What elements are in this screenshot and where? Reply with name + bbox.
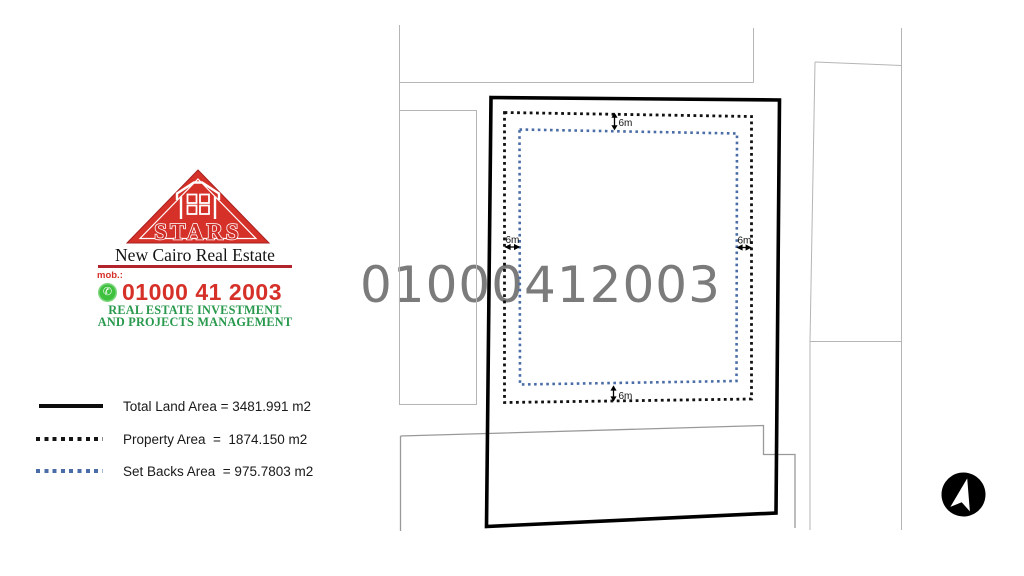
tagline-line2: AND PROJECTS MANAGEMENT	[90, 315, 300, 330]
logo-roof-graphic: STARS	[90, 166, 300, 244]
setback-label-right: 6m	[738, 236, 752, 247]
dotted-black-swatch	[36, 437, 103, 441]
logo-divider	[98, 265, 292, 268]
dimension-arrowheads	[504, 113, 751, 402]
solid-line-swatch	[39, 404, 103, 408]
setback-label-top: 6m	[619, 118, 633, 129]
dotted-blue-swatch	[36, 469, 103, 473]
legend-label-setbacks: Set Backs Area = 975.7803 m2	[123, 464, 313, 479]
legend-row-setbacks: Set Backs Area = 975.7803 m2	[36, 462, 313, 480]
setback-label-left: 6m	[506, 235, 520, 246]
legend-row-total-land: Total Land Area = 3481.991 m2	[36, 397, 311, 415]
dimension-arrows	[506, 114, 751, 401]
total-land-boundary	[487, 98, 780, 527]
plot-plan-page: 01000412003	[0, 0, 1024, 576]
phone-row: ✆ 01000 41 2003	[98, 279, 282, 306]
whatsapp-icon: ✆	[98, 283, 117, 302]
phone-number: 01000 41 2003	[122, 279, 282, 306]
area-legend: Total Land Area = 3481.991 m2 Property A…	[36, 390, 376, 490]
property-area-boundary	[505, 113, 752, 403]
company-logo: STARS New Cairo Real Estate mob.: ✆ 0100…	[90, 166, 300, 336]
dimension-labels: 6m 6m 6m 6m	[506, 118, 752, 402]
brand-name-text: STARS	[154, 220, 241, 245]
setback-area-boundary	[520, 130, 738, 385]
north-arrow-icon	[937, 468, 990, 521]
legend-row-property: Property Area = 1874.150 m2	[36, 430, 307, 448]
legend-label-total-land: Total Land Area = 3481.991 m2	[123, 399, 311, 414]
neighbor-parcel-lines	[400, 25, 902, 530]
legend-label-property: Property Area = 1874.150 m2	[123, 432, 307, 447]
company-subtitle: New Cairo Real Estate	[90, 245, 300, 266]
setback-label-bottom: 6m	[619, 391, 633, 402]
